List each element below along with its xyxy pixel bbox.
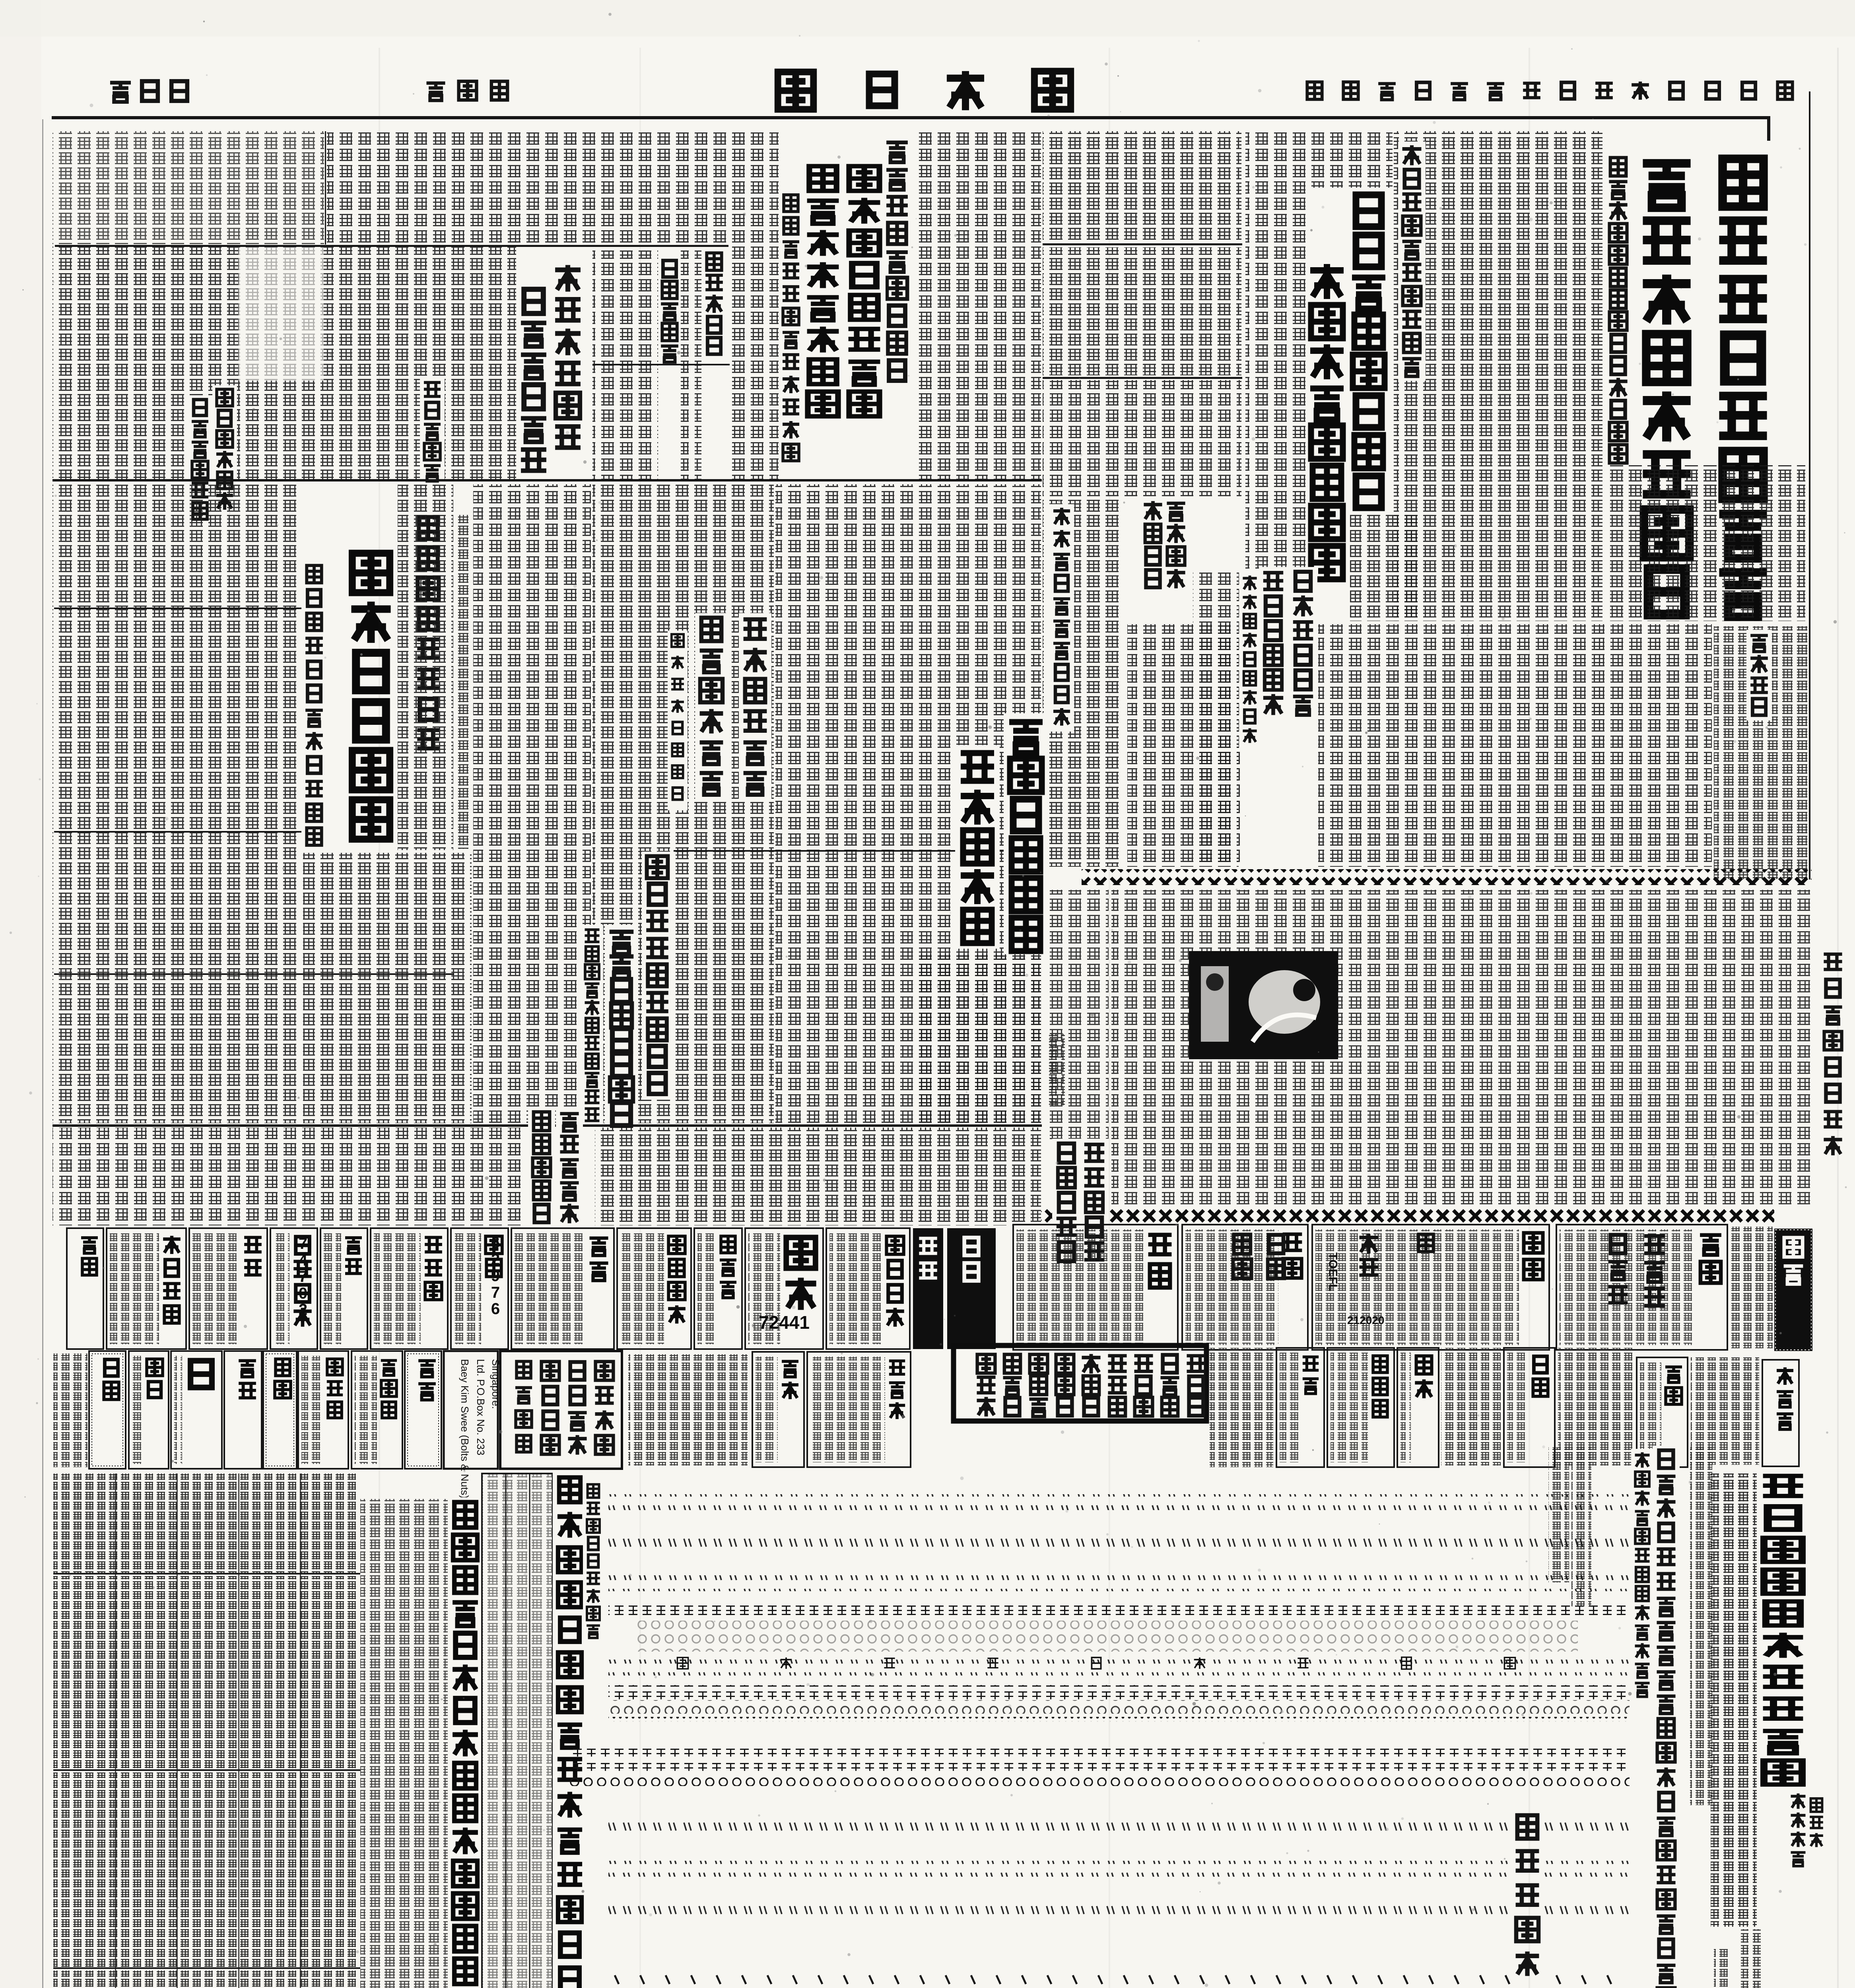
svg-text:6: 6	[491, 1300, 500, 1318]
svg-text:2: 2	[491, 1251, 500, 1268]
svg-text:7: 7	[299, 1235, 307, 1252]
svg-text:0: 0	[299, 1285, 307, 1302]
svg-text:2: 2	[299, 1301, 307, 1318]
svg-text:Ltd. P.O.Box No. 233: Ltd. P.O.Box No. 233	[475, 1359, 487, 1455]
svg-text:TOEFL: TOEFL	[1327, 1252, 1340, 1291]
svg-text:7: 7	[299, 1268, 307, 1285]
svg-text:6: 6	[491, 1234, 500, 1252]
svg-text:72441: 72441	[759, 1312, 810, 1333]
svg-text:Baey Kim Swee (Bolts & Nuts): Baey Kim Swee (Bolts & Nuts)	[459, 1359, 471, 1499]
svg-text:7: 7	[491, 1284, 500, 1301]
svg-text:9: 9	[491, 1267, 500, 1285]
svg-text:212020: 212020	[1347, 1314, 1384, 1326]
svg-text:4: 4	[299, 1252, 308, 1269]
